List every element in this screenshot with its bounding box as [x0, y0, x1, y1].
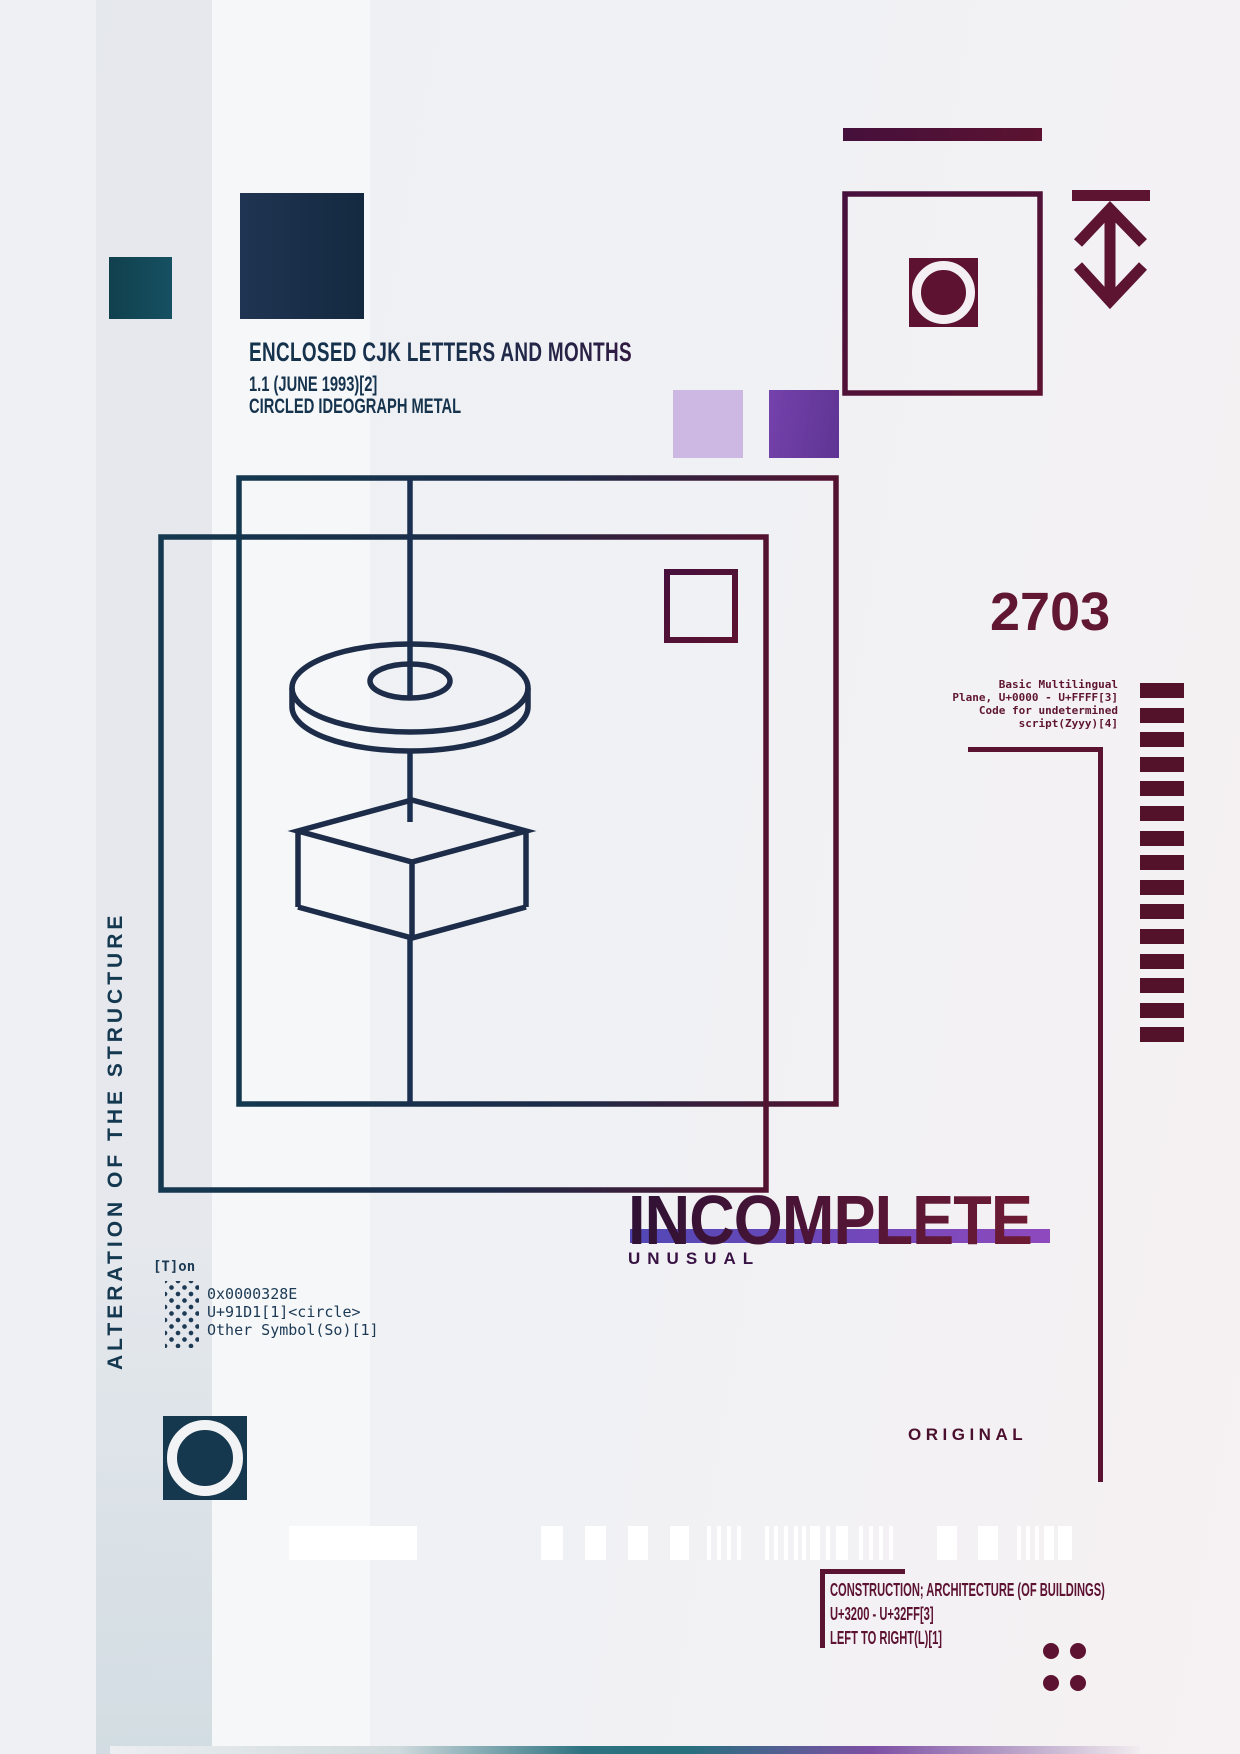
ladder-bar: [1140, 781, 1184, 796]
plane-info-line: Code for undetermined: [860, 704, 1118, 717]
ladder-bar: [1140, 708, 1184, 723]
barcode-bar: [585, 1526, 606, 1560]
barcode-bar: [717, 1526, 721, 1560]
barcode-bar: [774, 1526, 778, 1560]
barcode-bar: [1035, 1526, 1039, 1560]
dot-grid-icon: [165, 1281, 199, 1348]
frame-rect-outer: [239, 478, 836, 1104]
corner-dots-icon: [1043, 1643, 1086, 1691]
code-line: U+91D1[1]<circle>: [207, 1303, 379, 1321]
barcode-bar: [794, 1526, 798, 1560]
corner-dot: [1043, 1643, 1059, 1659]
ladder-bar: [1140, 831, 1184, 846]
barcode-bar: [727, 1526, 731, 1560]
barcode-bar: [978, 1526, 998, 1560]
code-line: 0x0000328E: [207, 1285, 379, 1303]
height-arrow-icon: [1072, 190, 1150, 301]
poster-canvas: ENCLOSED CJK LETTERS AND MONTHS 1.1 (JUN…: [0, 0, 1240, 1754]
ladder-bar: [1140, 732, 1184, 747]
ring-circle-icon: [167, 1420, 243, 1496]
ladder-bar: [1140, 954, 1184, 969]
barcode-bar: [707, 1526, 711, 1560]
barcode-bar: [859, 1526, 863, 1560]
footer-line: CONSTRUCTION; ARCHITECTURE (OF BUILDINGS…: [830, 1578, 1105, 1602]
barcode-icon: [0, 1526, 1240, 1560]
barcode-bar: [765, 1526, 769, 1560]
ladder-bar: [1140, 683, 1184, 698]
side-vertical-text: ALTERATION OF THE STRUCTURE: [104, 910, 128, 1370]
ladder-bars: [1140, 683, 1184, 1052]
corner-dot: [1043, 1675, 1059, 1691]
barcode-bar: [879, 1526, 883, 1560]
small-square-outline: [667, 572, 735, 640]
ladder-bar: [1140, 929, 1184, 944]
incomplete-title: INCOMPLETE: [628, 1185, 1032, 1255]
barcode-bar: [1058, 1526, 1072, 1560]
barcode-bar: [810, 1526, 820, 1560]
ladder-bar: [1140, 855, 1184, 870]
barcode-bar: [289, 1526, 417, 1560]
original-label: ORIGINAL: [908, 1425, 1027, 1445]
barcode-bar: [784, 1526, 788, 1560]
big-number: 2703: [990, 585, 1110, 639]
barcode-bar: [670, 1526, 689, 1560]
barcode-bar: [889, 1526, 893, 1560]
barcode-bar: [802, 1526, 806, 1560]
ladder-bar: [1140, 806, 1184, 821]
ladder-bar: [1140, 1003, 1184, 1018]
bottom-gradient-strip: [110, 1746, 1140, 1754]
pointer-line: [968, 750, 1101, 1483]
ladder-bar: [1140, 904, 1184, 919]
ladder-bar: [1140, 757, 1184, 772]
barcode-bar: [1026, 1526, 1030, 1560]
code-lines: 0x0000328E U+91D1[1]<circle> Other Symbo…: [207, 1285, 379, 1339]
barcode-bar: [541, 1526, 563, 1560]
barcode-bar: [1044, 1526, 1054, 1560]
barcode-bar: [937, 1526, 957, 1560]
plane-info: Basic Multilingual Plane, U+0000 - U+FFF…: [860, 678, 1118, 730]
plane-info-line: script(Zyyy)[4]: [860, 717, 1118, 730]
barcode-bar: [836, 1526, 848, 1560]
footer-lines: CONSTRUCTION; ARCHITECTURE (OF BUILDINGS…: [830, 1578, 1240, 1650]
barcode-bar: [826, 1526, 830, 1560]
ladder-bar: [1140, 1027, 1184, 1042]
footer-line: U+3200 - U+32FF[3]: [830, 1602, 934, 1626]
barcode-bar: [628, 1526, 648, 1560]
unusual-subtitle: UNUSUAL: [628, 1249, 760, 1269]
footer-line: LEFT TO RIGHT(L)[1]: [830, 1626, 942, 1650]
corner-dot: [1070, 1643, 1086, 1659]
barcode-bar: [869, 1526, 873, 1560]
token-label: [T]on: [153, 1259, 195, 1275]
ladder-bar: [1140, 880, 1184, 895]
ladder-bar: [1140, 978, 1184, 993]
plane-info-line: Basic Multilingual: [860, 678, 1118, 691]
frame-rect-inner: [161, 537, 766, 1190]
barcode-bar: [737, 1526, 741, 1560]
plane-info-line: Plane, U+0000 - U+FFFF[3]: [860, 691, 1118, 704]
ring-square: [163, 1416, 247, 1500]
code-line: Other Symbol(So)[1]: [207, 1321, 379, 1339]
barcode-bar: [1017, 1526, 1021, 1560]
corner-dot: [1070, 1675, 1086, 1691]
